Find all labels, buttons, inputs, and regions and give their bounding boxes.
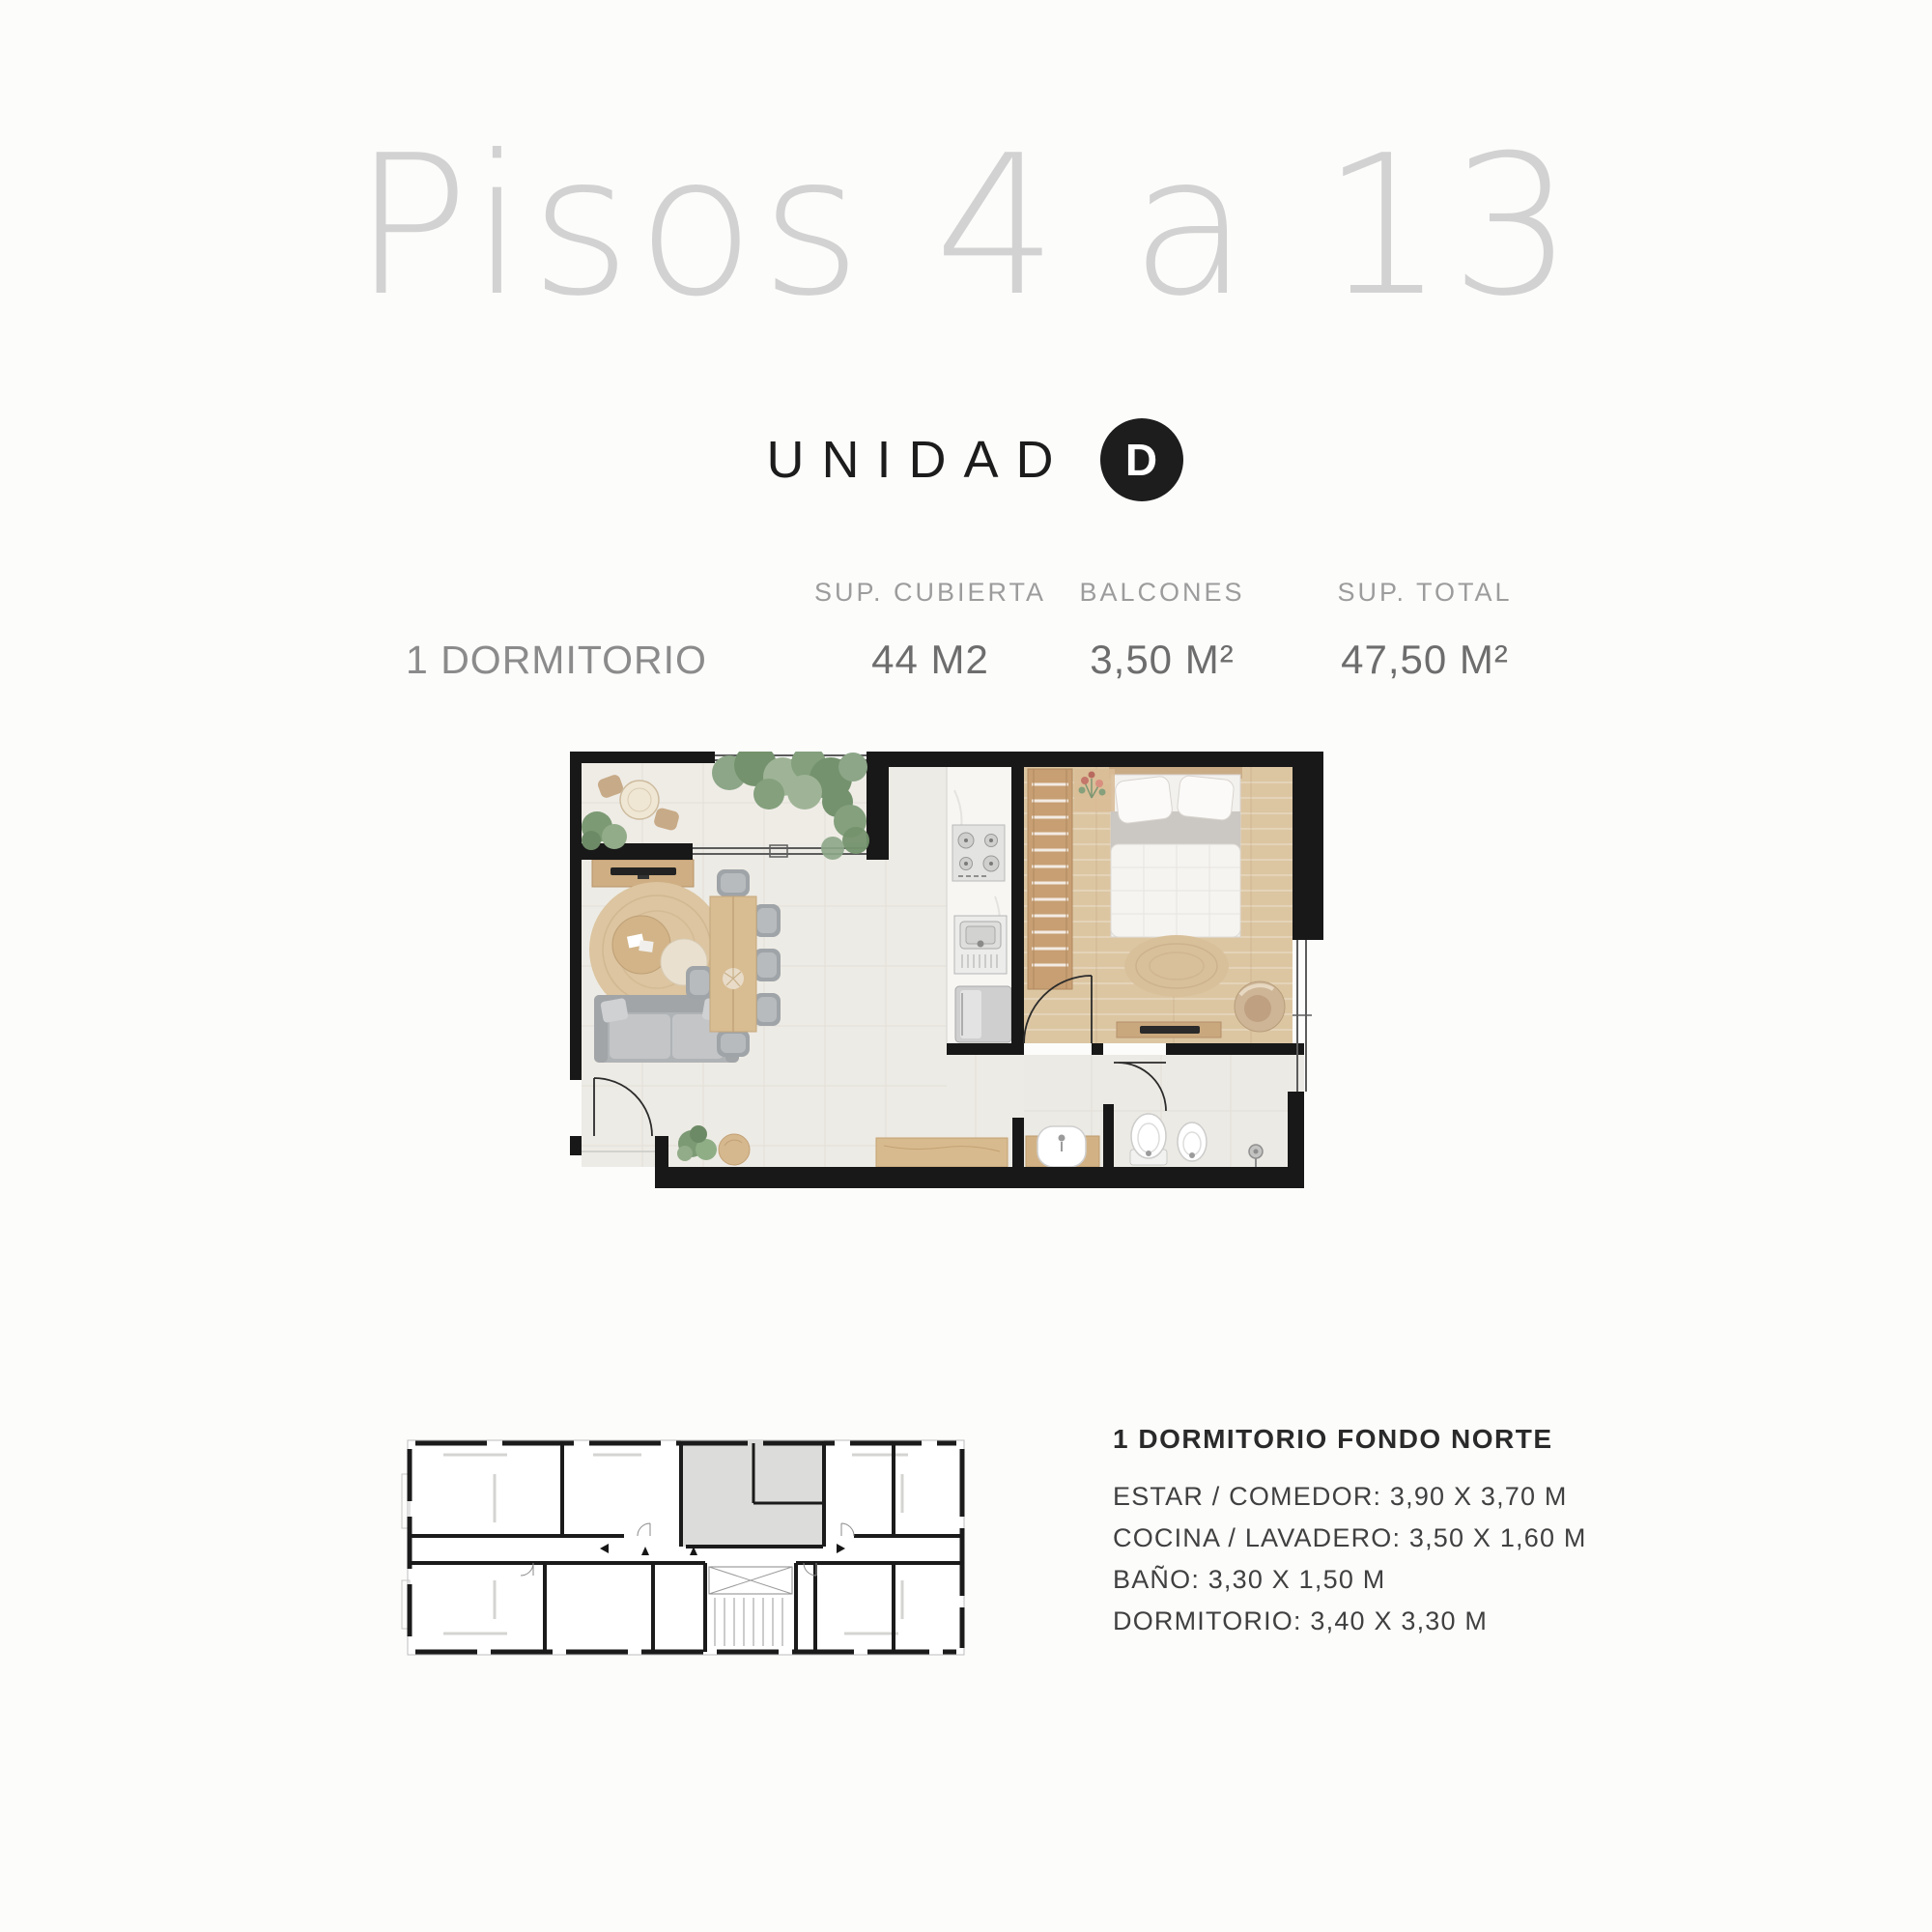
kitchen-sink: [954, 916, 1007, 974]
spec-col-sup-total: SUP. TOTAL 47,50 M²: [1270, 578, 1579, 683]
fridge: [955, 986, 1011, 1042]
details-heading: 1 DORMITORIO FONDO NORTE: [1113, 1424, 1567, 1455]
unit-floor-plan: [570, 752, 1328, 1201]
detail-line-cocina-lavadero: COCINA / LAVADERO: 3,50 X 1,60 M: [1113, 1518, 1567, 1559]
bedroom-flowers: [1074, 769, 1115, 811]
brochure-page: Pisos 4 a 13 UNIDAD D 1 DORMITORIO SUP. …: [0, 0, 1932, 1932]
entry-side-table: [719, 1134, 750, 1165]
unit-letter-badge-icon: D: [1100, 418, 1183, 501]
spec-value: 47,50 M²: [1270, 637, 1579, 683]
detail-line-estar-comedor: ESTAR / COMEDOR: 3,90 X 3,70 M: [1113, 1476, 1567, 1518]
stove: [952, 825, 1005, 881]
unit-row: UNIDAD D: [0, 413, 1932, 506]
detail-line-bano: BAÑO: 3,30 X 1,50 M: [1113, 1559, 1567, 1601]
detail-line-dormitorio: DORMITORIO: 3,40 X 3,30 M: [1113, 1601, 1567, 1642]
bedroom-chair: [1235, 981, 1285, 1032]
bench: [876, 1138, 1008, 1167]
spec-row-label: 1 DORMITORIO: [406, 638, 705, 683]
unit-letter: D: [1125, 434, 1157, 486]
building-key-plan: [400, 1435, 972, 1660]
page-title: Pisos 4 a 13: [0, 126, 1932, 328]
building-key-plan-svg: [400, 1435, 972, 1660]
unit-details: 1 DORMITORIO FONDO NORTE ESTAR / COMEDOR…: [1113, 1424, 1567, 1642]
spec-header: SUP. TOTAL: [1270, 578, 1579, 608]
toilet: [1130, 1114, 1167, 1165]
bed: [1109, 767, 1242, 937]
bidet: [1178, 1122, 1207, 1161]
tv: [611, 867, 676, 875]
unit-floor-plan-svg: [570, 752, 1328, 1201]
closet: [1028, 769, 1072, 989]
unit-label: UNIDAD: [749, 430, 1070, 490]
